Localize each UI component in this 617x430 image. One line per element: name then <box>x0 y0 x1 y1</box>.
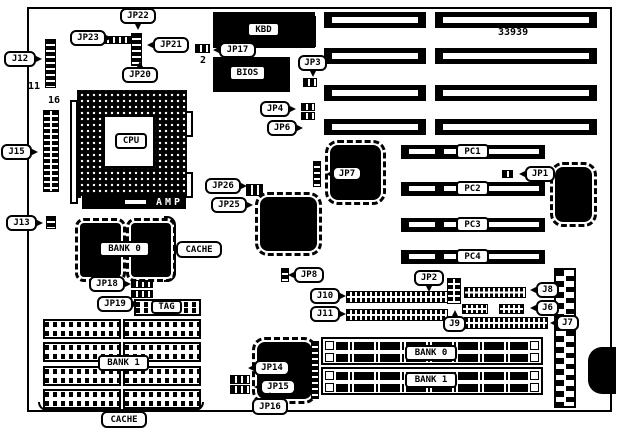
callout-cache-bottom: CACHE <box>101 411 147 428</box>
jumper-jp14 <box>230 375 250 384</box>
label-cpu-text: CPU <box>123 136 139 146</box>
slot-contact-stripe <box>409 186 435 191</box>
callout-j11: J11 <box>310 306 340 322</box>
callout-cache-bottom-text: CACHE <box>110 415 137 425</box>
callout-j8: J8 <box>536 282 559 298</box>
callout-j8-text: J8 <box>542 285 553 295</box>
callout-pointer <box>530 286 538 294</box>
label-pc3-text: PC3 <box>464 220 480 230</box>
callout-pointer <box>530 304 538 312</box>
jumper-jp3 <box>303 78 317 87</box>
callout-jp2: JP2 <box>414 270 444 286</box>
isa-slot-4-right <box>435 119 597 135</box>
header-j7 <box>464 317 548 329</box>
io-qfp-chip <box>555 167 592 222</box>
header-j9 <box>462 304 488 314</box>
callout-cache-top-text: CACHE <box>185 245 212 255</box>
simm-clip <box>325 371 334 380</box>
part-number-text: 33939 <box>498 27 528 38</box>
j13-jumper <box>46 216 56 229</box>
jumper-jp15 <box>230 385 250 394</box>
cache-brace <box>38 402 204 411</box>
isa-slot-1-left <box>324 12 426 28</box>
callout-j12: J12 <box>4 51 36 67</box>
label-pc1: PC1 <box>456 144 489 159</box>
label-pc2: PC2 <box>456 181 489 196</box>
callout-jp15-text: JP15 <box>267 382 289 392</box>
label-tag: TAG <box>151 300 182 314</box>
callout-pointer <box>35 219 43 227</box>
callout-jp20: JP20 <box>122 67 158 83</box>
callout-pointer <box>451 310 459 318</box>
callout-j10: J10 <box>310 288 340 304</box>
header-j8 <box>464 287 526 298</box>
callout-pointer <box>131 300 139 308</box>
callout-j10-text: J10 <box>317 291 333 301</box>
callout-pointer <box>239 182 247 190</box>
isa-slot-3-right <box>435 85 597 101</box>
pin-count-11: 11 <box>28 80 46 92</box>
pin-count-11-text: 11 <box>28 81 40 92</box>
callout-cache-top: CACHE <box>176 241 222 258</box>
simm-left-bracket <box>311 341 319 399</box>
callout-jp23: JP23 <box>70 30 106 46</box>
isa-slot-3-left <box>324 85 426 101</box>
isa-slot-4-left <box>324 119 426 135</box>
label-pc2-text: PC2 <box>464 184 480 194</box>
callout-jp25: JP25 <box>211 197 247 213</box>
callout-jp1: JP1 <box>525 166 555 182</box>
callout-pointer <box>134 22 142 30</box>
socket-clip <box>185 172 193 198</box>
cache-sram-chip <box>123 319 201 339</box>
callout-pointer <box>248 364 256 372</box>
callout-j13: J13 <box>6 215 37 231</box>
callout-j11-text: J11 <box>317 309 333 319</box>
callout-jp22-text: JP22 <box>127 11 149 21</box>
callout-j7-text: J7 <box>562 318 573 328</box>
callout-jp20-text: JP20 <box>129 70 151 80</box>
pin-number-2: 2 <box>200 54 210 66</box>
callout-jp14: JP14 <box>254 360 290 376</box>
callout-j9-text: J9 <box>449 319 460 329</box>
callout-pointer <box>30 148 38 156</box>
simm-clip <box>325 383 334 392</box>
isa-slot-2-left <box>324 48 426 64</box>
callout-j7: J7 <box>556 315 579 331</box>
jumper-jp18 <box>131 280 153 288</box>
label-cache-bank0-text: BANK 0 <box>108 244 141 254</box>
label-bios-text: BIOS <box>237 68 259 78</box>
callout-jp3: JP3 <box>298 55 327 71</box>
small-chip <box>300 16 316 47</box>
callout-pointer <box>338 310 346 318</box>
chipset-qfp-chip <box>260 197 317 251</box>
label-cache-bank1-text: BANK 1 <box>107 358 140 368</box>
label-simm-bank1: BANK 1 <box>405 372 457 388</box>
jumper-block-jp2 <box>447 278 461 304</box>
callout-pointer <box>288 105 296 113</box>
callout-jp7-text: JP7 <box>339 169 355 179</box>
label-pc4: PC4 <box>456 249 489 264</box>
label-pc1-text: PC1 <box>464 147 480 157</box>
callout-jp18-text: JP18 <box>96 279 118 289</box>
header-j11 <box>346 309 448 321</box>
callout-jp4-text: JP4 <box>267 104 283 114</box>
label-kbd-text: KBD <box>255 25 271 35</box>
jumper-jp1 <box>502 170 513 178</box>
callout-pointer <box>213 46 221 54</box>
callout-j15-text: J15 <box>8 147 24 157</box>
j15-connector <box>43 110 59 192</box>
cache-sram-chip <box>43 319 121 339</box>
slot-contact-stripe <box>409 222 435 227</box>
slot-contact-stripe <box>489 254 539 259</box>
socket-clip <box>185 111 193 137</box>
callout-pointer <box>519 170 527 178</box>
callout-jp21-text: JP21 <box>160 40 182 50</box>
simm-clip <box>530 371 539 380</box>
header-j6 <box>499 304 524 314</box>
callout-j13-text: J13 <box>13 218 29 228</box>
jumper-jp19 <box>131 290 153 298</box>
jumper-jp17 <box>195 44 210 53</box>
simm-clip <box>530 383 539 392</box>
callout-jp7: JP7 <box>332 166 362 181</box>
callout-pointer <box>147 41 155 49</box>
slot-contact-stripe <box>489 222 539 227</box>
callout-jp4: JP4 <box>260 101 290 117</box>
callout-pointer <box>295 124 303 132</box>
callout-j9: J9 <box>443 316 466 332</box>
callout-pointer <box>123 280 131 288</box>
callout-pointer <box>550 319 558 327</box>
callout-pointer <box>425 284 433 292</box>
simm-clip <box>530 353 539 362</box>
amp-socket-bracket-text: AMP <box>156 197 183 208</box>
callout-pointer <box>136 61 144 69</box>
callout-j15: J15 <box>1 144 32 160</box>
motherboard-diagram: AMPKBDBIOSCPUBANK 0TAGBANK 1PC1PC2PC3PC4… <box>0 0 617 430</box>
callout-jp25-text: JP25 <box>218 200 240 210</box>
callout-pointer <box>34 55 42 63</box>
label-simm-bank0-text: BANK 0 <box>415 348 448 358</box>
slot-contact-stripe <box>489 149 539 154</box>
label-pc3: PC3 <box>456 217 489 232</box>
label-bios: BIOS <box>229 65 266 81</box>
slot-contact-stripe <box>489 186 539 191</box>
label-kbd: KBD <box>247 22 280 37</box>
pin-number-2-text: 2 <box>200 55 206 66</box>
callout-jp17-text: JP17 <box>227 45 249 55</box>
callout-pointer <box>254 383 262 391</box>
callout-jp22: JP22 <box>120 8 156 24</box>
callout-jp26-text: JP26 <box>212 181 234 191</box>
callout-jp8: JP8 <box>294 267 324 283</box>
callout-jp1-text: JP1 <box>532 169 548 179</box>
label-tag-text: TAG <box>158 302 174 312</box>
slot-contact-stripe <box>409 254 435 259</box>
pin-count-16: 16 <box>48 94 66 106</box>
callout-pointer <box>104 34 112 42</box>
pin-count-16-text: 16 <box>48 95 60 106</box>
callout-jp14-text: JP14 <box>261 363 283 373</box>
label-cache-bank1: BANK 1 <box>98 355 149 371</box>
callout-jp3-text: JP3 <box>304 58 320 68</box>
header-j10 <box>346 291 448 303</box>
callout-jp8-text: JP8 <box>301 270 317 280</box>
callout-jp6-text: JP6 <box>274 123 290 133</box>
label-cache-bank0: BANK 0 <box>99 241 150 257</box>
j12-connector <box>45 39 56 88</box>
callout-jp23-text: JP23 <box>77 33 99 43</box>
simm-clip <box>325 341 334 350</box>
amp-bracket-window <box>123 198 148 206</box>
callout-pointer <box>326 170 334 178</box>
callout-jp21: JP21 <box>153 37 189 53</box>
zif-lever <box>70 100 78 204</box>
din-keyboard-connector <box>588 347 616 394</box>
part-number: 33939 <box>498 26 538 39</box>
callout-jp18: JP18 <box>89 276 125 292</box>
callout-jp16-text: JP16 <box>259 402 281 412</box>
cache-brace <box>164 216 176 282</box>
callout-pointer <box>309 69 317 77</box>
jumper-jp4 <box>301 103 315 111</box>
callout-j6: J6 <box>536 300 559 316</box>
callout-pointer <box>338 292 346 300</box>
callout-jp2-text: JP2 <box>421 273 437 283</box>
label-pc4-text: PC4 <box>464 252 480 262</box>
callout-pointer <box>288 271 296 279</box>
callout-jp19-text: JP19 <box>104 299 126 309</box>
isa-slot-2-right <box>435 48 597 64</box>
callout-pointer <box>245 201 253 209</box>
callout-jp6: JP6 <box>267 120 297 136</box>
slot-contact-stripe <box>409 149 435 154</box>
callout-jp17: JP17 <box>219 42 256 58</box>
callout-j6-text: J6 <box>542 303 553 313</box>
callout-jp16: JP16 <box>252 398 288 415</box>
label-cpu: CPU <box>115 133 147 149</box>
callout-j12-text: J12 <box>12 54 28 64</box>
callout-jp19: JP19 <box>97 296 133 312</box>
label-simm-bank0: BANK 0 <box>405 345 457 361</box>
simm-clip <box>530 341 539 350</box>
jumper-jp7 <box>313 161 321 187</box>
callout-jp26: JP26 <box>205 178 241 194</box>
jumper-jp25-jp26 <box>246 184 263 196</box>
callout-pointer <box>266 392 274 400</box>
label-simm-bank1-text: BANK 1 <box>415 375 448 385</box>
simm-clip <box>325 353 334 362</box>
jumper-jp6 <box>301 112 315 120</box>
